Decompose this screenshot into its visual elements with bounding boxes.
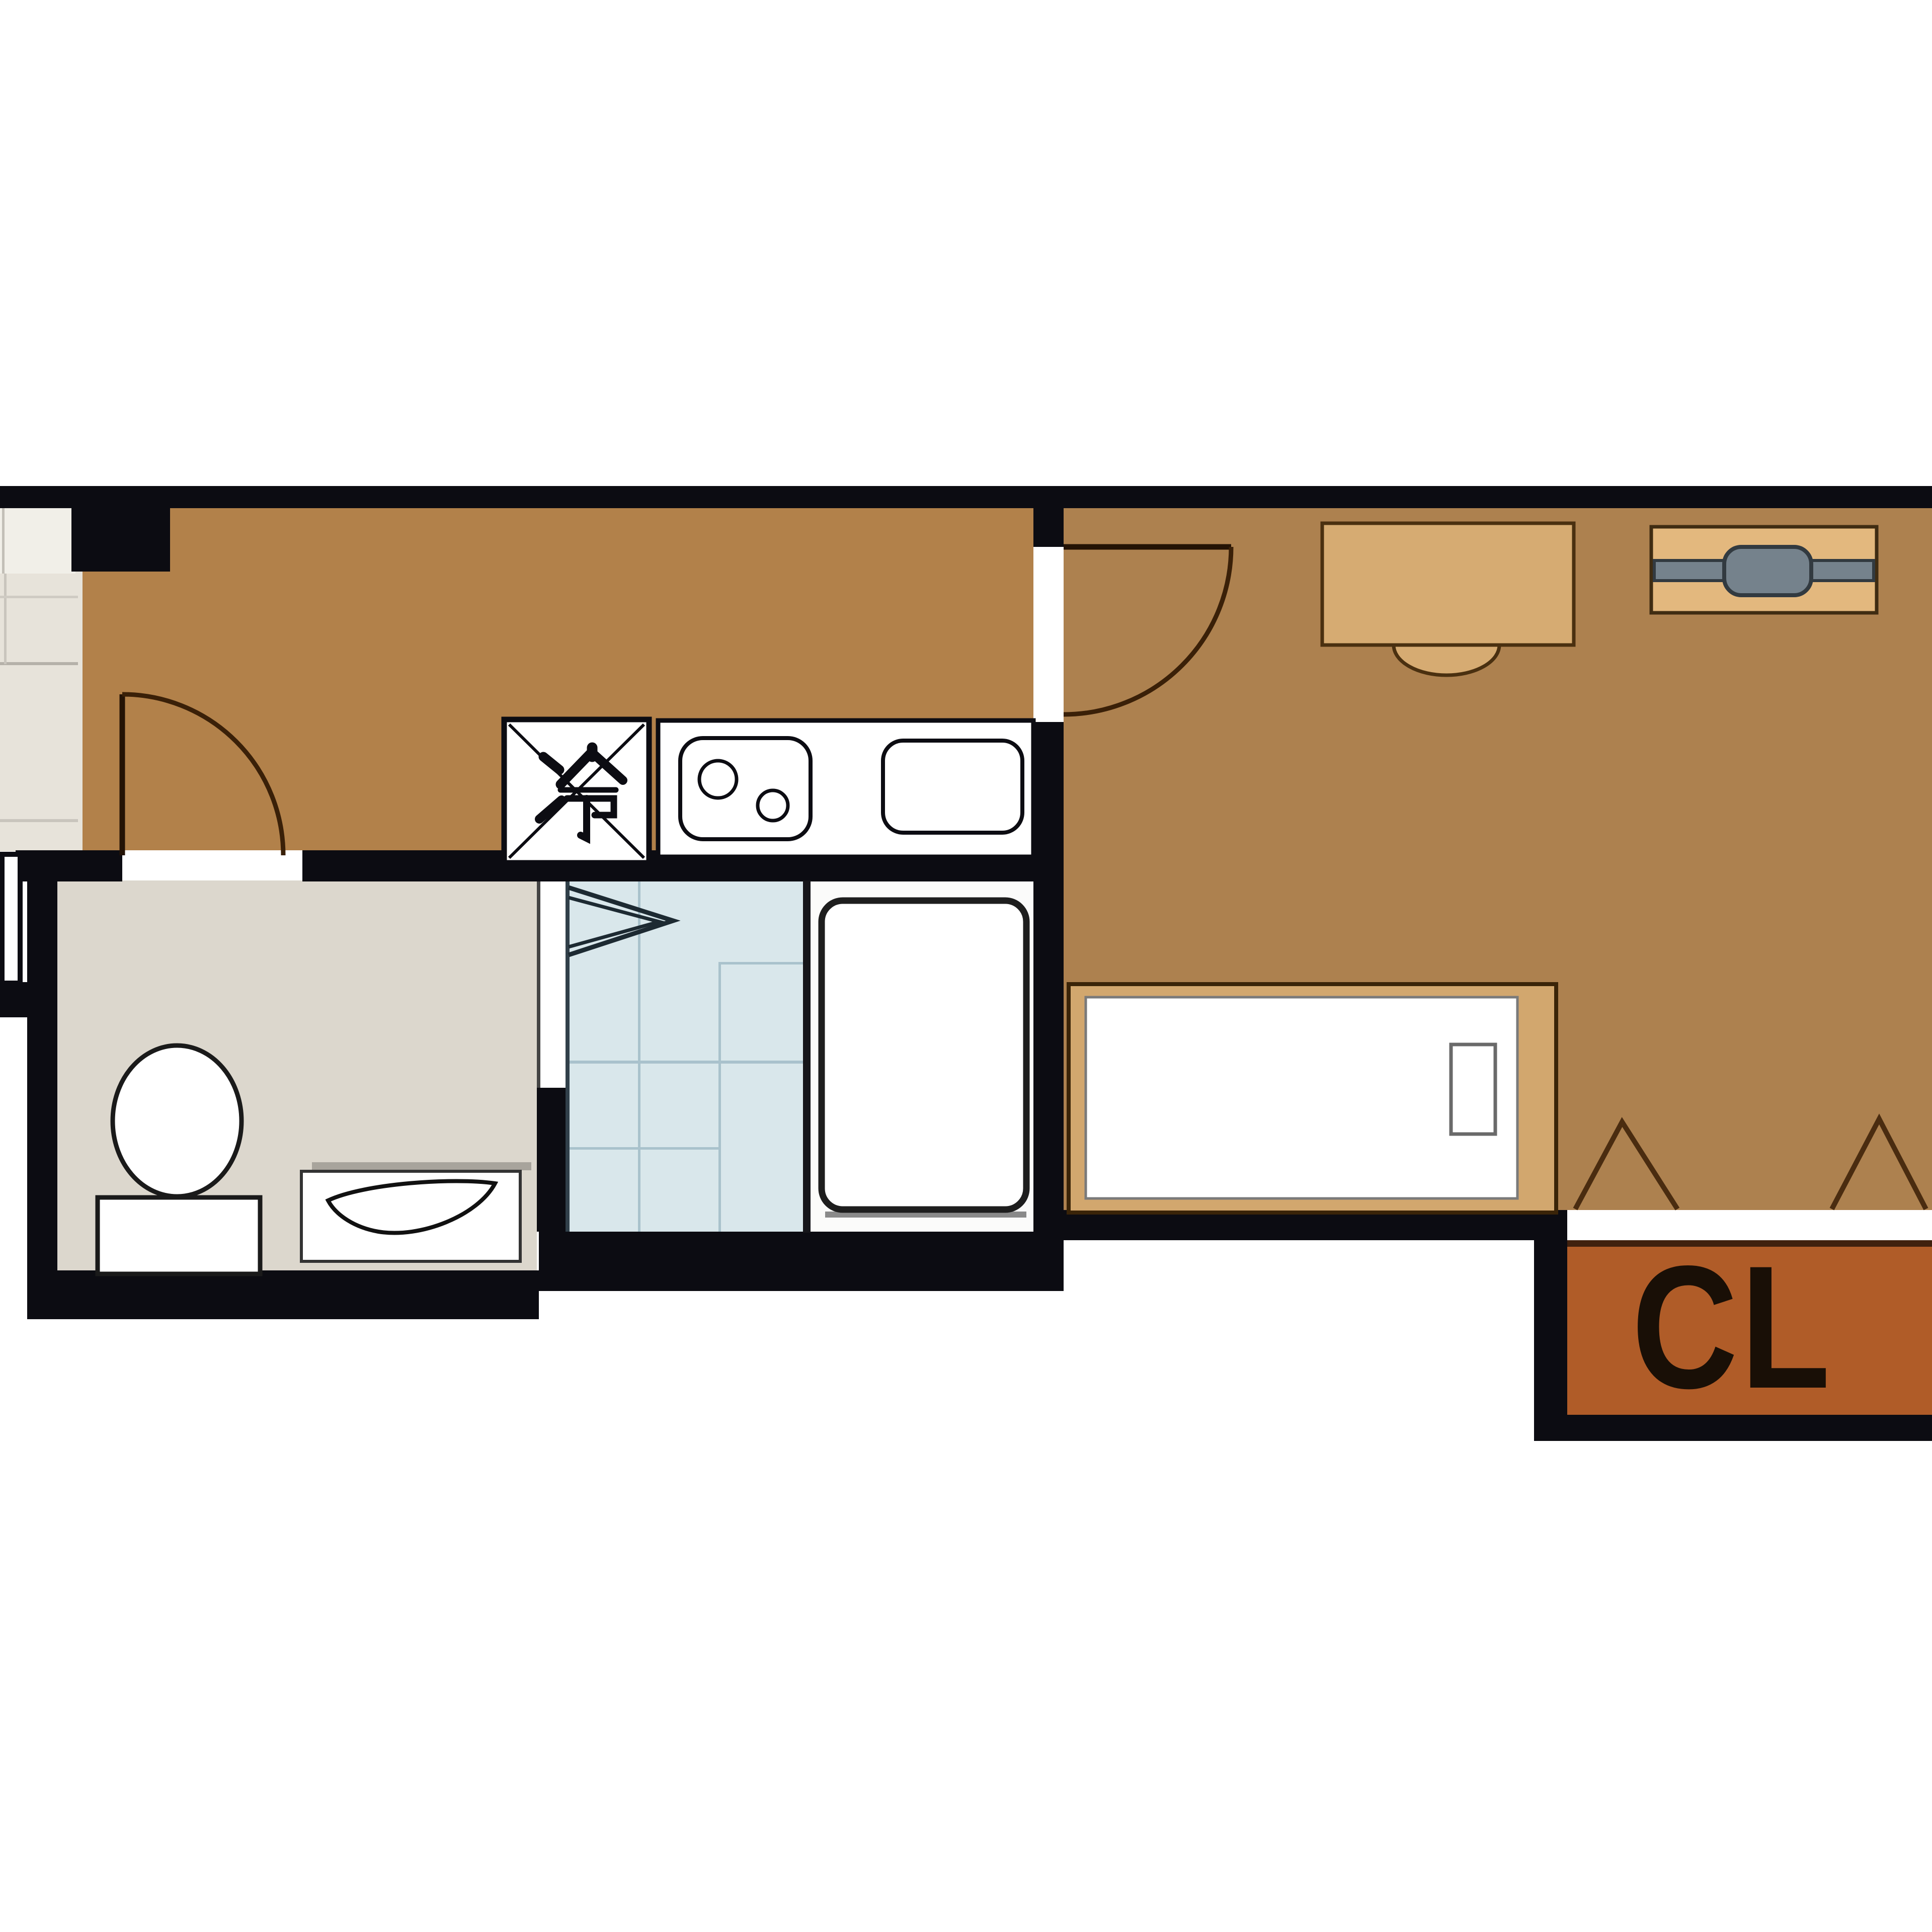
svg-text:CL: CL — [1632, 1230, 1833, 1425]
